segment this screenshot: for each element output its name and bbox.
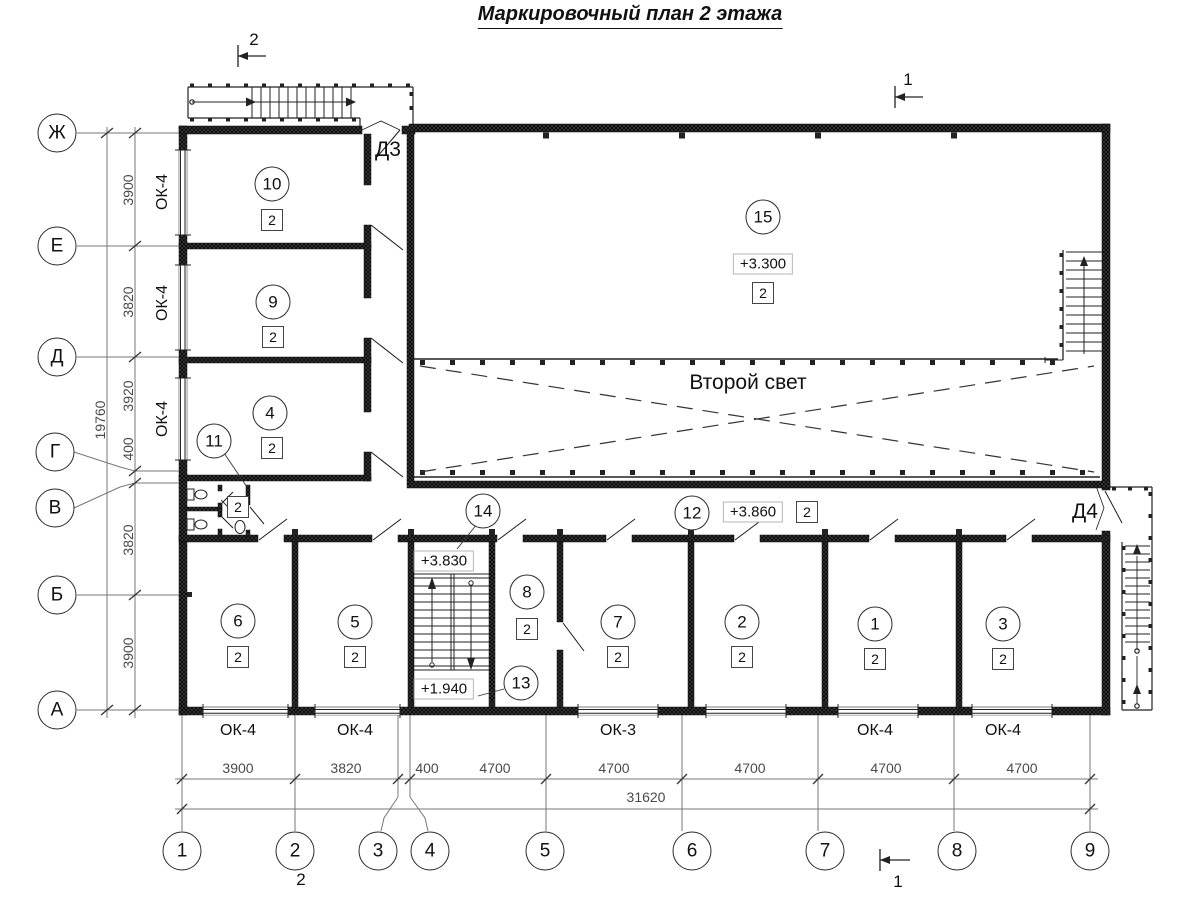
dim-bottom-2: 3820: [330, 760, 361, 776]
door-mark-d4: Д4: [1072, 500, 1098, 524]
dim-bottom-6: 4700: [734, 760, 765, 776]
dim-bottom-4: 4700: [479, 760, 510, 776]
wc-finish-mark: 2: [227, 496, 249, 518]
room-4-finish-mark: 2: [261, 437, 283, 459]
room-6-number: 6: [221, 604, 256, 639]
dim-left-4: 400: [120, 437, 136, 460]
window-mark-bottom-3: ОК-3: [600, 722, 636, 740]
window-mark-bottom-1: ОК-4: [220, 722, 256, 740]
elevation-stair-lower: +1.940: [414, 679, 474, 700]
axis-row-v: В: [36, 489, 75, 528]
axis-col-6: 6: [673, 832, 712, 871]
axis-row-d: Д: [38, 338, 77, 377]
axis-col-8: 8: [938, 832, 977, 871]
door-mark-d3: Д3: [375, 138, 401, 162]
floor-plan: Маркировочный план 2 этажа Ж Е Д Г В Б А…: [0, 0, 1200, 900]
dim-left-1: 3900: [120, 174, 136, 205]
dim-bottom-1: 3900: [222, 760, 253, 776]
window-mark-bottom-4: ОК-4: [857, 722, 893, 740]
dim-left-6: 3900: [120, 637, 136, 668]
axis-row-b: Б: [38, 576, 77, 615]
axis-col-7: 7: [806, 832, 845, 871]
axis-row-zh: Ж: [38, 114, 77, 153]
window-mark-left-1: ОК-4: [154, 174, 172, 210]
section-mark-2-bottom: 2: [296, 870, 305, 890]
window-mark-left-3: ОК-4: [154, 401, 172, 437]
section-mark-2-top: 2: [249, 30, 258, 50]
axis-col-2: 2: [276, 832, 315, 871]
room-15-number: 15: [746, 200, 781, 235]
dim-bottom-8: 4700: [1006, 760, 1037, 776]
axis-col-1: 1: [163, 832, 202, 871]
elevation-corridor: +3.860: [723, 502, 783, 523]
room-4-number: 4: [253, 396, 288, 431]
room-9-number: 9: [256, 285, 291, 320]
room-8-finish-mark: 2: [516, 618, 538, 640]
axis-col-9: 9: [1071, 832, 1110, 871]
axis-col-5: 5: [526, 832, 565, 871]
room-3-number: 3: [986, 607, 1021, 642]
room-1-number: 1: [858, 607, 893, 642]
window-mark-bottom-2: ОК-4: [337, 722, 373, 740]
room-12-number: 12: [675, 496, 710, 531]
room-10-finish-mark: 2: [261, 209, 283, 231]
section-mark-1-top: 1: [903, 70, 912, 90]
room-2-number: 2: [725, 605, 760, 640]
dim-left-2: 3820: [120, 286, 136, 317]
dim-left-total: 19760: [92, 401, 108, 440]
room-5-number: 5: [338, 605, 373, 640]
plan-title: Маркировочный план 2 этажа: [478, 3, 783, 29]
room-15-finish-mark: 2: [752, 282, 774, 304]
axis-row-e: Е: [38, 227, 77, 266]
elevation-hall: +3.300: [733, 254, 793, 275]
axis-col-3: 3: [359, 832, 398, 871]
dim-bottom-3: 400: [415, 760, 438, 776]
second-light-label: Второй свет: [689, 371, 806, 395]
room-11-number: 11: [197, 424, 232, 459]
room-14-number: 14: [466, 494, 501, 529]
elevation-stair-upper: +3.830: [414, 551, 474, 572]
window-mark-bottom-5: ОК-4: [985, 722, 1021, 740]
axis-row-g: Г: [36, 433, 75, 472]
dim-bottom-5: 4700: [598, 760, 629, 776]
axis-row-a: А: [38, 691, 77, 730]
axis-col-4: 4: [411, 832, 450, 871]
dim-bottom-total: 31620: [627, 789, 666, 805]
room-1-finish-mark: 2: [864, 648, 886, 670]
room-8-number: 8: [510, 575, 545, 610]
room-5-finish-mark: 2: [344, 646, 366, 668]
window-mark-left-2: ОК-4: [154, 285, 172, 321]
corridor-finish-mark: 2: [796, 501, 818, 523]
dim-left-5: 3820: [120, 524, 136, 555]
room-6-finish-mark: 2: [227, 646, 249, 668]
room-7-finish-mark: 2: [607, 646, 629, 668]
room-13-number: 13: [504, 666, 539, 701]
room-7-number: 7: [601, 605, 636, 640]
dim-left-3: 3920: [120, 380, 136, 411]
room-10-number: 10: [255, 167, 290, 202]
room-9-finish-mark: 2: [262, 326, 284, 348]
room-2-finish-mark: 2: [731, 646, 753, 668]
room-3-finish-mark: 2: [992, 648, 1014, 670]
section-mark-1-bottom: 1: [893, 872, 902, 892]
dim-bottom-7: 4700: [870, 760, 901, 776]
